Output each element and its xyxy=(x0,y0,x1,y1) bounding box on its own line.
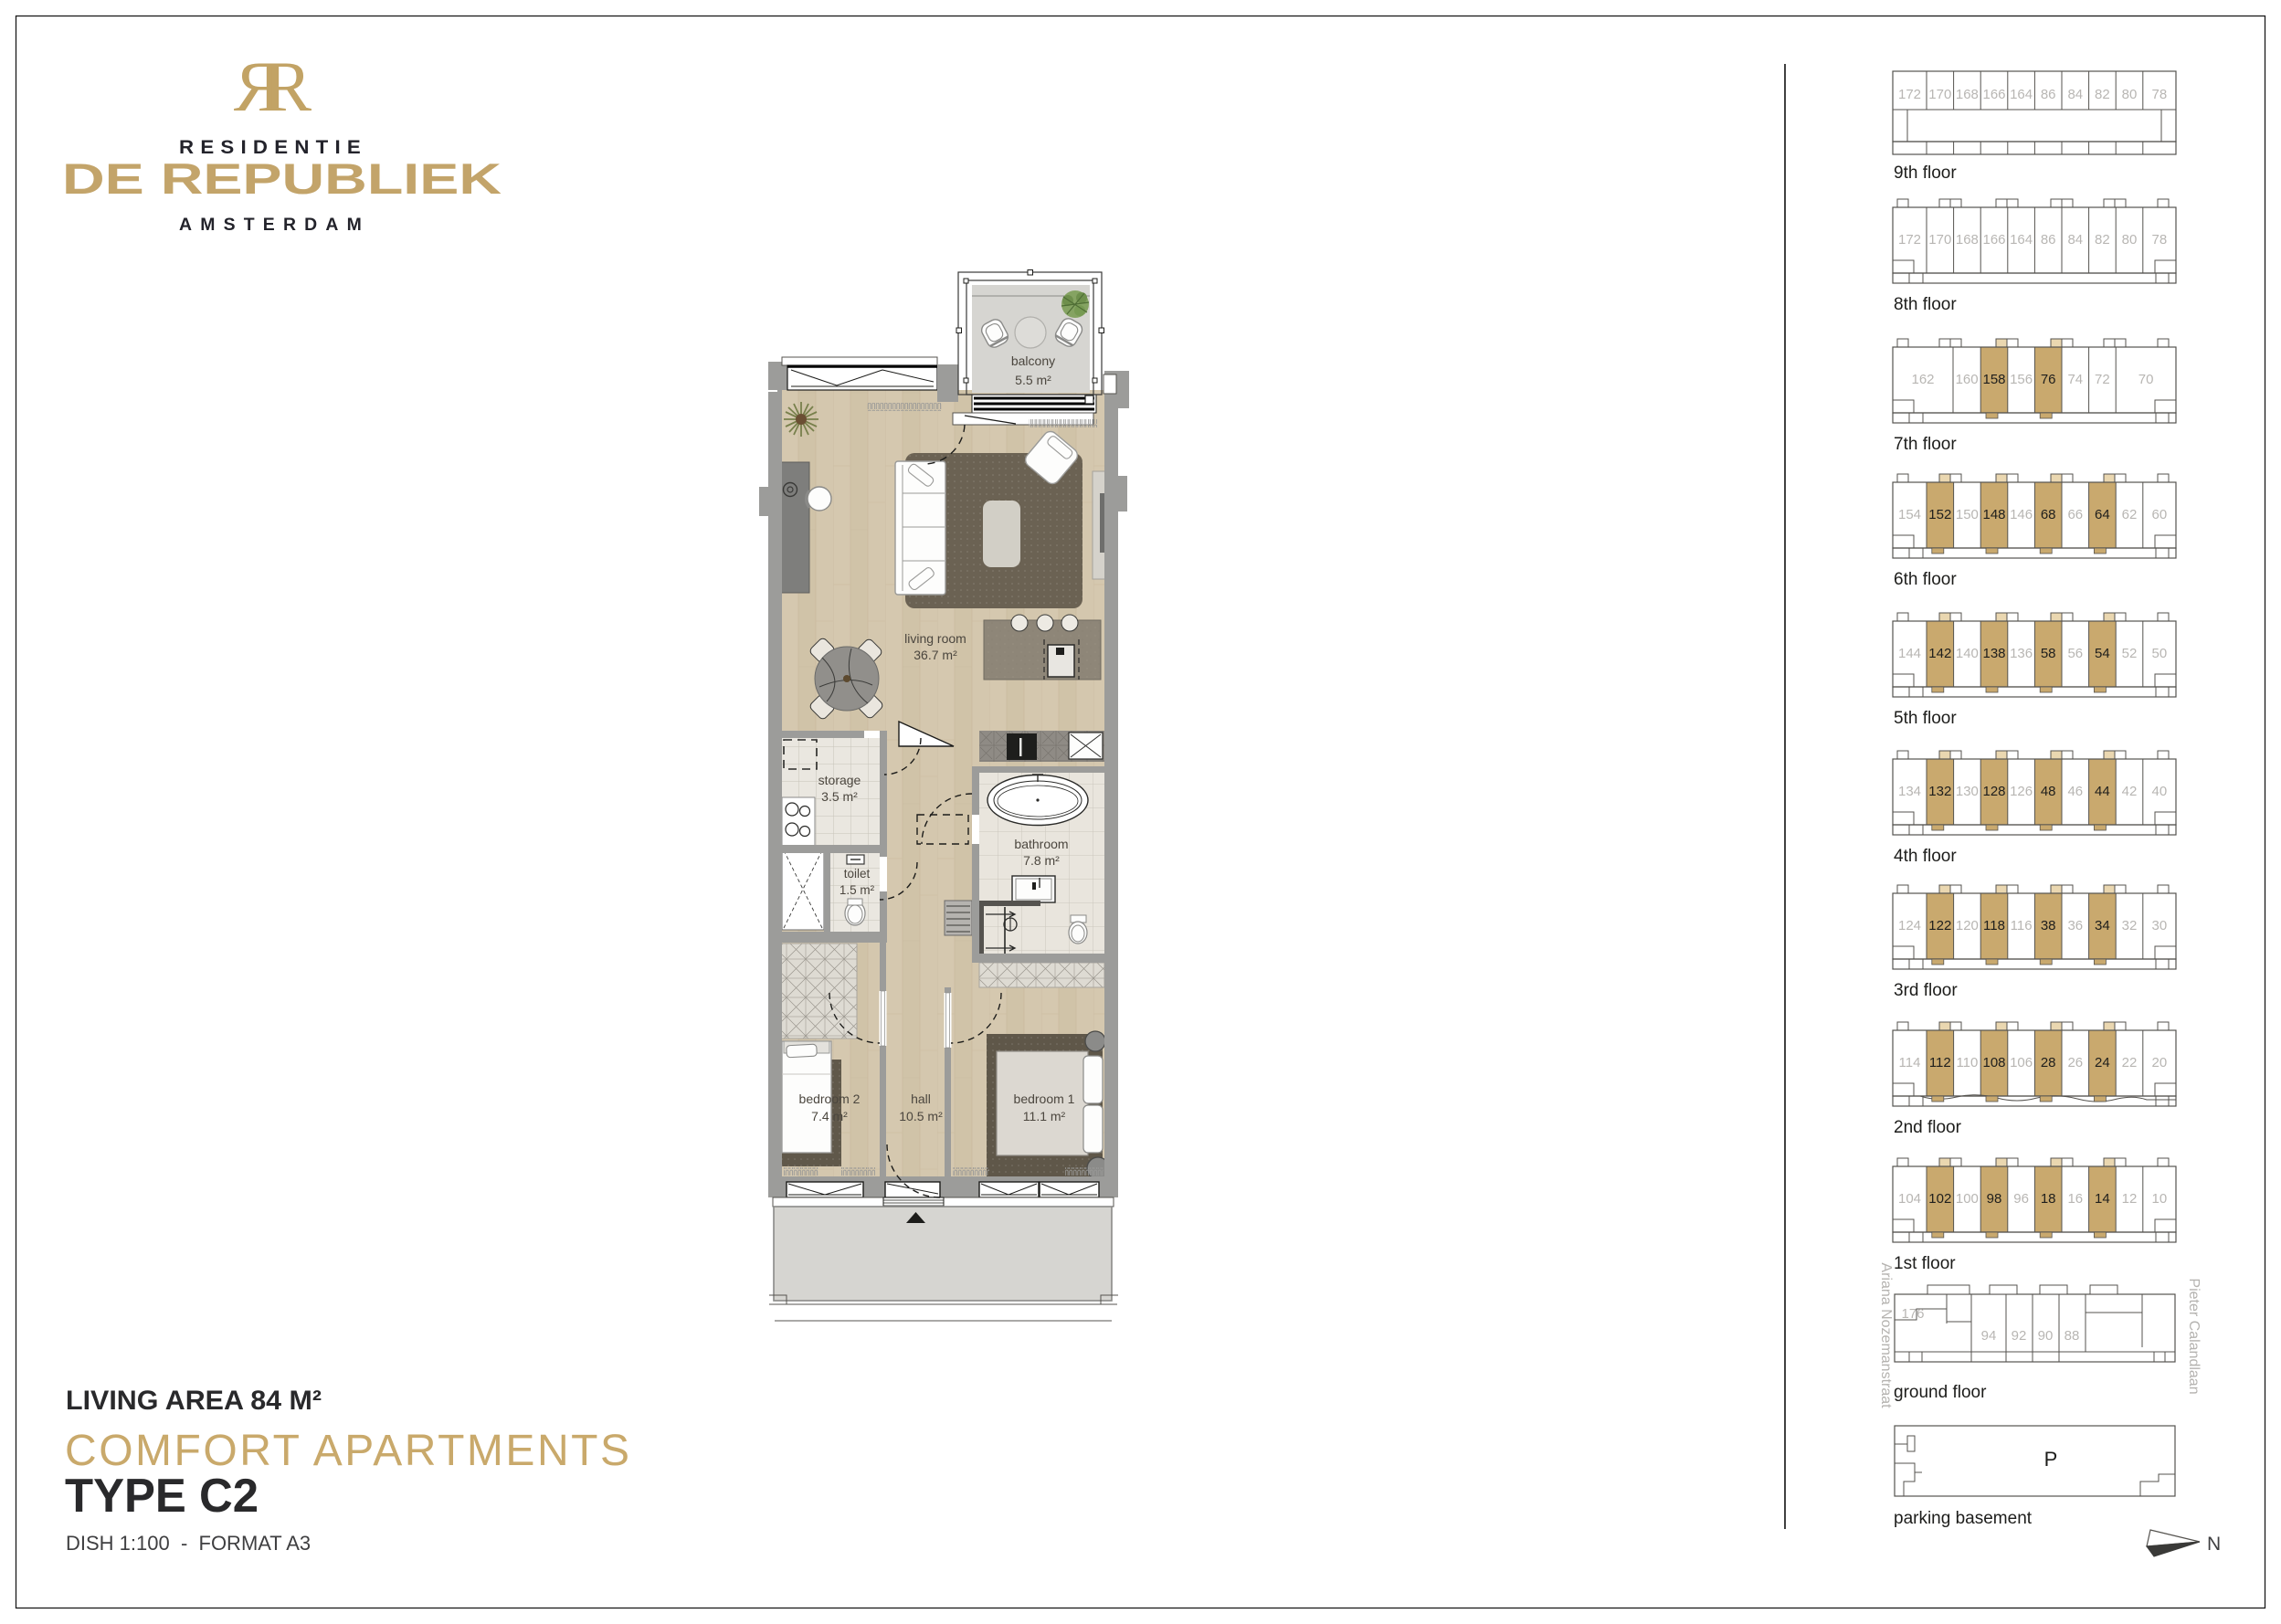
svg-text:1.5 m²: 1.5 m² xyxy=(840,883,875,897)
svg-text:52: 52 xyxy=(2122,646,2138,661)
svg-text:164: 164 xyxy=(2010,232,2033,248)
svg-text:AMSTERDAM: AMSTERDAM xyxy=(179,216,370,235)
svg-text:120: 120 xyxy=(1956,918,1979,933)
svg-text:LIVING AREA 84 M²: LIVING AREA 84 M² xyxy=(66,1386,322,1416)
svg-text:76: 76 xyxy=(2041,372,2056,387)
svg-text:46: 46 xyxy=(2067,784,2083,799)
svg-text:112: 112 xyxy=(1929,1055,1951,1070)
svg-text:40: 40 xyxy=(2152,784,2168,799)
svg-text:122: 122 xyxy=(1928,918,1951,933)
svg-text:3rd floor: 3rd floor xyxy=(1894,981,1958,1000)
svg-text:176: 176 xyxy=(1901,1306,1924,1322)
svg-text:5.5 m²: 5.5 m² xyxy=(1015,373,1051,387)
svg-text:172: 172 xyxy=(1898,232,1921,248)
svg-text:116: 116 xyxy=(2011,918,2033,933)
svg-text:124: 124 xyxy=(1898,918,1921,933)
svg-text:94: 94 xyxy=(1981,1328,1997,1344)
svg-text:Ariana Nozemanstraat: Ariana Nozemanstraat xyxy=(1878,1262,1894,1408)
svg-text:DE REPUBLIEK: DE REPUBLIEK xyxy=(62,154,502,203)
svg-text:balcony: balcony xyxy=(1011,353,1055,368)
svg-text:COMFORT APARTMENTS: COMFORT APARTMENTS xyxy=(65,1427,629,1475)
svg-text:138: 138 xyxy=(1982,646,2005,661)
svg-text:78: 78 xyxy=(2152,87,2168,102)
svg-text:18: 18 xyxy=(2041,1191,2056,1207)
svg-text:38: 38 xyxy=(2041,918,2056,933)
svg-text:80: 80 xyxy=(2122,87,2138,102)
svg-text:1st floor: 1st floor xyxy=(1894,1254,1956,1273)
svg-text:146: 146 xyxy=(2010,507,2033,522)
svg-text:82: 82 xyxy=(2095,232,2110,248)
svg-text:bedroom 2: bedroom 2 xyxy=(799,1091,861,1106)
svg-text:4th floor: 4th floor xyxy=(1894,847,1957,866)
svg-text:142: 142 xyxy=(1928,646,1951,661)
svg-text:84: 84 xyxy=(2067,232,2083,248)
svg-text:7.4 m²: 7.4 m² xyxy=(811,1109,848,1123)
svg-text:68: 68 xyxy=(2041,507,2056,522)
svg-text:152: 152 xyxy=(1928,507,1951,522)
svg-text:72: 72 xyxy=(2095,372,2110,387)
svg-text:50: 50 xyxy=(2152,646,2168,661)
svg-text:156: 156 xyxy=(2010,372,2033,387)
svg-text:9th floor: 9th floor xyxy=(1894,163,1957,183)
svg-text:74: 74 xyxy=(2067,372,2083,387)
svg-text:106: 106 xyxy=(2010,1055,2033,1070)
svg-text:70: 70 xyxy=(2138,372,2154,387)
svg-text:80: 80 xyxy=(2122,232,2138,248)
svg-text:22: 22 xyxy=(2122,1055,2138,1070)
svg-text:166: 166 xyxy=(1982,232,2005,248)
svg-text:44: 44 xyxy=(2095,784,2110,799)
svg-text:126: 126 xyxy=(2010,784,2033,799)
svg-text:134: 134 xyxy=(1898,784,1921,799)
svg-text:172: 172 xyxy=(1898,87,1921,102)
svg-text:100: 100 xyxy=(1956,1191,1979,1207)
svg-text:88: 88 xyxy=(2065,1328,2080,1344)
svg-text:86: 86 xyxy=(2041,232,2056,248)
svg-text:132: 132 xyxy=(1928,784,1951,799)
svg-text:84: 84 xyxy=(2067,87,2083,102)
svg-text:170: 170 xyxy=(1928,232,1951,248)
svg-text:56: 56 xyxy=(2067,646,2083,661)
svg-text:toilet: toilet xyxy=(844,867,871,881)
svg-text:36: 36 xyxy=(2067,918,2083,933)
svg-text:5th floor: 5th floor xyxy=(1894,709,1957,728)
svg-text:140: 140 xyxy=(1956,646,1979,661)
svg-text:8th floor: 8th floor xyxy=(1894,295,1957,314)
svg-text:128: 128 xyxy=(1982,784,2005,799)
svg-text:DISH 1:100 - FORMAT A3: DISH 1:100 - FORMAT A3 xyxy=(66,1532,311,1555)
svg-text:166: 166 xyxy=(1982,87,2005,102)
svg-text:34: 34 xyxy=(2095,918,2110,933)
svg-text:154: 154 xyxy=(1898,507,1921,522)
svg-text:58: 58 xyxy=(2041,646,2056,661)
svg-text:102: 102 xyxy=(1928,1191,1951,1207)
svg-text:16: 16 xyxy=(2067,1191,2083,1207)
svg-text:136: 136 xyxy=(2010,646,2033,661)
svg-text:62: 62 xyxy=(2122,507,2138,522)
svg-text:ground floor: ground floor xyxy=(1894,1383,1987,1402)
svg-text:11.1 m²: 11.1 m² xyxy=(1023,1109,1066,1123)
svg-text:66: 66 xyxy=(2067,507,2083,522)
svg-text:24: 24 xyxy=(2095,1055,2110,1070)
svg-text:92: 92 xyxy=(2012,1328,2027,1344)
svg-text:28: 28 xyxy=(2041,1055,2056,1070)
svg-text:158: 158 xyxy=(1982,372,2005,387)
svg-text:parking basement: parking basement xyxy=(1894,1509,2033,1528)
svg-text:10.5 m²: 10.5 m² xyxy=(899,1109,943,1123)
svg-text:10: 10 xyxy=(2152,1191,2168,1207)
svg-text:150: 150 xyxy=(1956,507,1979,522)
svg-text:82: 82 xyxy=(2095,87,2110,102)
svg-text:7.8 m²: 7.8 m² xyxy=(1023,853,1060,868)
svg-text:96: 96 xyxy=(2013,1191,2029,1207)
svg-text:12: 12 xyxy=(2122,1191,2138,1207)
svg-text:86: 86 xyxy=(2041,87,2056,102)
svg-text:3.5 m²: 3.5 m² xyxy=(821,789,858,804)
svg-text:108: 108 xyxy=(1982,1055,2005,1070)
svg-text:78: 78 xyxy=(2152,232,2168,248)
svg-text:98: 98 xyxy=(1987,1191,2002,1207)
svg-text:104: 104 xyxy=(1898,1191,1921,1207)
svg-text:6th floor: 6th floor xyxy=(1894,570,1957,589)
svg-text:170: 170 xyxy=(1928,87,1951,102)
svg-text:Pieter Calandlaan: Pieter Calandlaan xyxy=(2186,1278,2202,1394)
svg-text:162: 162 xyxy=(1911,372,1934,387)
svg-text:30: 30 xyxy=(2152,918,2168,933)
svg-text:60: 60 xyxy=(2152,507,2168,522)
svg-text:P: P xyxy=(2044,1448,2058,1471)
svg-text:26: 26 xyxy=(2067,1055,2083,1070)
svg-text:R: R xyxy=(264,47,312,126)
svg-text:168: 168 xyxy=(1956,87,1979,102)
svg-text:118: 118 xyxy=(1983,918,2005,933)
svg-text:64: 64 xyxy=(2095,507,2110,522)
svg-text:42: 42 xyxy=(2122,784,2138,799)
svg-text:32: 32 xyxy=(2122,918,2138,933)
svg-text:168: 168 xyxy=(1956,232,1979,248)
svg-text:130: 130 xyxy=(1956,784,1979,799)
svg-text:TYPE C2: TYPE C2 xyxy=(65,1470,259,1523)
svg-text:110: 110 xyxy=(1956,1055,1978,1070)
svg-text:bathroom: bathroom xyxy=(1014,837,1068,851)
svg-text:144: 144 xyxy=(1898,646,1921,661)
svg-text:48: 48 xyxy=(2041,784,2056,799)
svg-text:54: 54 xyxy=(2095,646,2110,661)
svg-text:bedroom 1: bedroom 1 xyxy=(1014,1091,1075,1106)
svg-text:148: 148 xyxy=(1982,507,2005,522)
svg-text:36.7 m²: 36.7 m² xyxy=(913,648,957,662)
svg-text:2nd floor: 2nd floor xyxy=(1894,1118,1962,1137)
svg-text:114: 114 xyxy=(1899,1055,1921,1070)
svg-text:160: 160 xyxy=(1956,372,1979,387)
svg-text:14: 14 xyxy=(2095,1191,2110,1207)
svg-text:living room: living room xyxy=(904,631,966,646)
svg-text:storage: storage xyxy=(818,773,861,787)
svg-text:7th floor: 7th floor xyxy=(1894,435,1957,454)
svg-text:20: 20 xyxy=(2152,1055,2168,1070)
svg-text:90: 90 xyxy=(2038,1328,2054,1344)
svg-text:N: N xyxy=(2207,1534,2221,1555)
svg-text:hall: hall xyxy=(911,1091,931,1106)
svg-text:164: 164 xyxy=(2010,87,2033,102)
